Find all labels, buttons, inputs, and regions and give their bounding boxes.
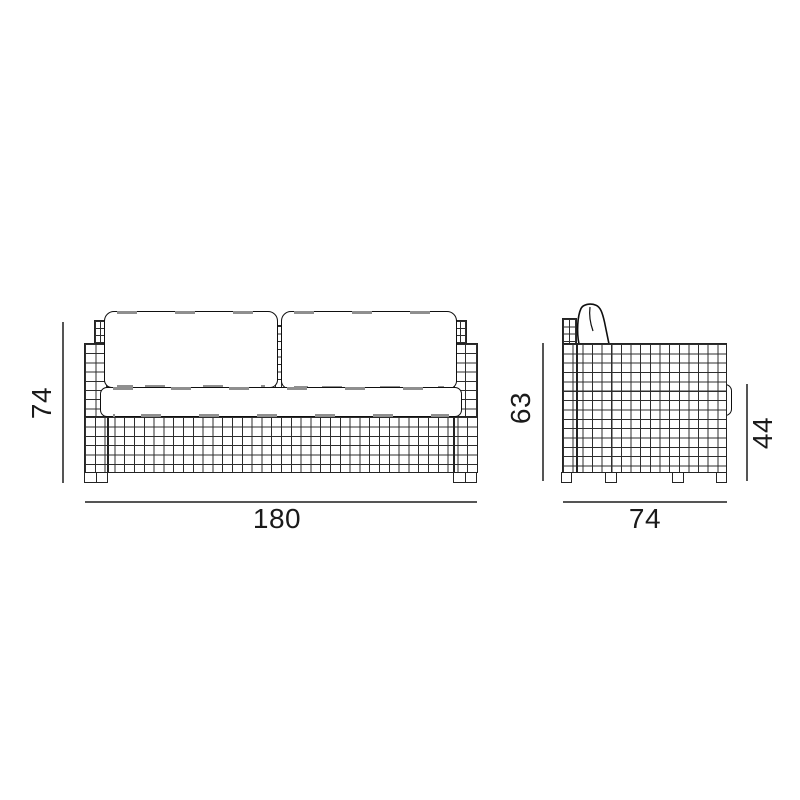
cushion-stitch-dashes	[113, 414, 449, 417]
side-foot	[561, 472, 572, 483]
side-back-height-dim-line	[542, 343, 544, 481]
technical-drawing-canvas: 74 180 63 44 74	[0, 0, 800, 800]
panel-separator-line	[453, 416, 455, 473]
cushion-stitch-dashes	[113, 387, 449, 390]
side-foot	[605, 472, 617, 483]
side-back-height-dim-label: 63	[505, 358, 537, 458]
side-back-cushion	[570, 302, 618, 346]
cushion-stitch-dashes	[117, 311, 265, 314]
panel-separator-line	[107, 416, 109, 473]
side-seat-height-dim-label: 44	[747, 383, 779, 483]
front-base-grid	[84, 416, 478, 473]
side-foot	[672, 472, 684, 483]
front-back-cushion-left	[104, 311, 278, 388]
side-depth-dim-label: 74	[595, 503, 695, 535]
front-seat-cushion	[100, 387, 462, 417]
panel-separator-line	[576, 343, 578, 473]
cushion-stitch-dashes	[294, 311, 444, 314]
side-body-grid	[562, 343, 727, 473]
front-back-cushion-right	[281, 311, 457, 389]
side-foot	[716, 472, 727, 483]
